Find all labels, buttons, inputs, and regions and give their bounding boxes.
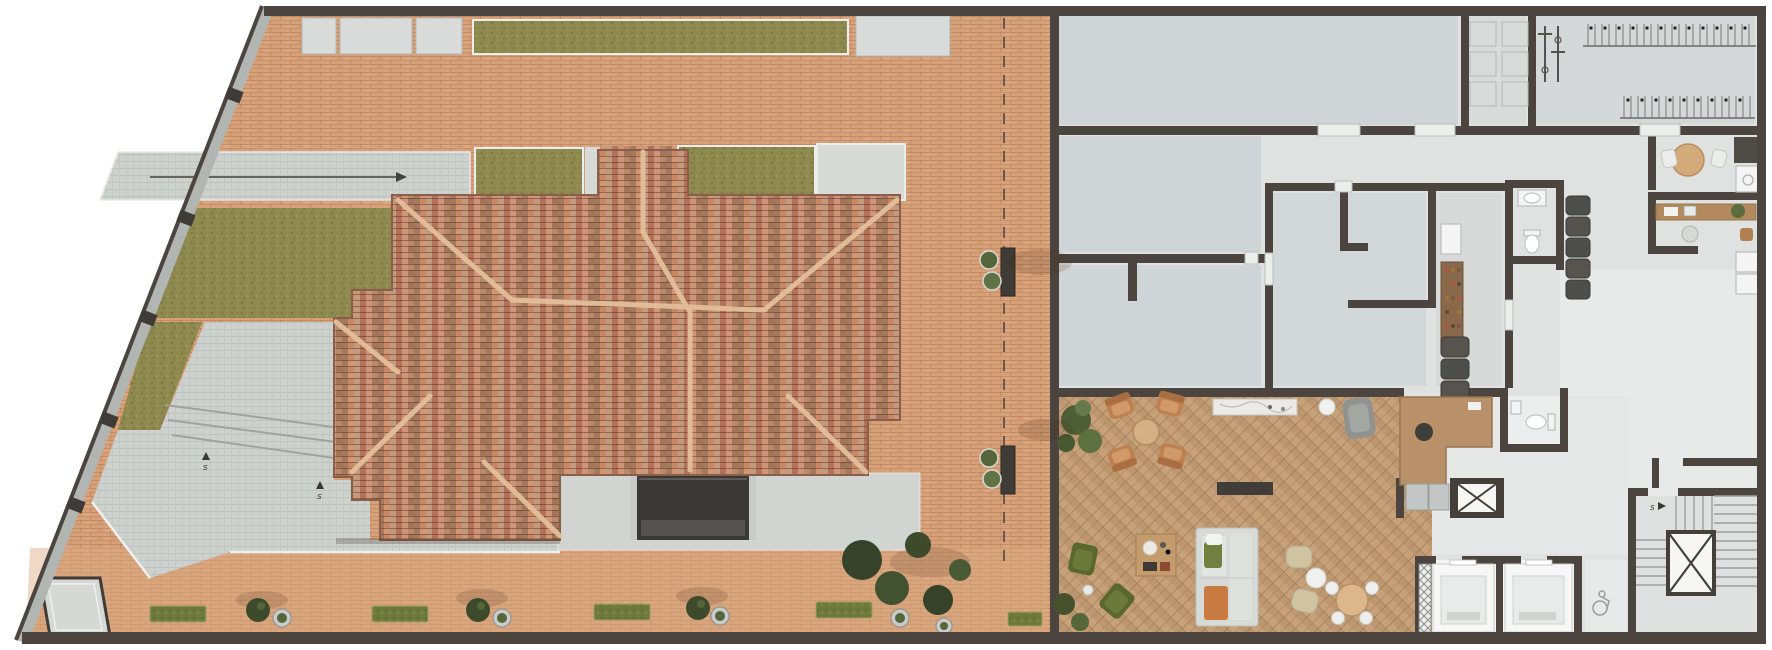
cabinet: [1734, 137, 1760, 163]
water-heaters: [1566, 196, 1590, 299]
rooms-mid: [1273, 193, 1426, 386]
orange-cushion: [1204, 586, 1228, 620]
accessible-wc-niche: [1585, 560, 1627, 632]
elevator: [1433, 560, 1494, 632]
toilet: [1526, 415, 1546, 429]
stair-label: s: [1650, 503, 1655, 513]
wc-room: [1508, 396, 1560, 444]
desk-papers: [1664, 207, 1678, 216]
hedge: [1008, 612, 1042, 626]
desk-monitor: [1684, 206, 1696, 216]
elevator: [1505, 560, 1572, 632]
hedge: [150, 606, 206, 622]
dining-chair: [1366, 582, 1379, 595]
kitchen: [1441, 224, 1463, 350]
roof-shadow: [336, 538, 560, 544]
dining-chair: [1326, 582, 1339, 595]
sink: [1511, 401, 1521, 414]
elevator-shaft-hatch: [1419, 564, 1431, 632]
hedge: [816, 602, 872, 618]
green-blanket: [1204, 542, 1222, 568]
south-wall: [22, 632, 1766, 644]
bar-counter: [1213, 399, 1297, 415]
office-chair: [1682, 226, 1698, 242]
room-mid-left-2: [1059, 265, 1261, 386]
planter-box: [340, 18, 412, 54]
desk-papers: [1468, 402, 1481, 410]
sink: [1524, 193, 1540, 203]
building: s: [1050, 12, 1766, 636]
stool: [1740, 228, 1753, 241]
coffee-table-square: [1136, 534, 1176, 576]
side-table: [1319, 399, 1335, 415]
desk-chair: [1415, 423, 1433, 441]
green-roof-strips: [475, 144, 905, 200]
green-planter-strip: [473, 20, 848, 54]
east-wall: [1757, 6, 1766, 642]
planter-box: [416, 18, 462, 54]
entry-walkway: [100, 152, 470, 200]
courtyard-void: [630, 476, 756, 540]
skylight-box: [40, 578, 110, 636]
lounge-armchair-gray: [1341, 396, 1376, 440]
elevator-door: [1526, 560, 1552, 565]
cabinet: [1406, 484, 1428, 510]
site-plan: s s: [0, 0, 1772, 650]
cabinet: [1429, 484, 1449, 510]
coffee-table: [1133, 419, 1159, 445]
hedge: [594, 604, 650, 620]
plant: [1731, 204, 1745, 218]
dining-chair: [1360, 612, 1373, 625]
step-label: s: [203, 463, 208, 473]
dining-table: [1336, 584, 1368, 616]
side-table: [1306, 568, 1326, 588]
console-bench: [1217, 482, 1273, 495]
hedge: [372, 606, 428, 622]
stair-void: [1668, 532, 1714, 594]
green-roof-strip: [678, 146, 815, 196]
kitchen-counter: [1736, 166, 1760, 192]
appliance: [1441, 224, 1461, 254]
planter-box: [856, 16, 950, 56]
break-room-chair: [1660, 149, 1677, 169]
sofa: [1196, 528, 1258, 626]
green-roof-strip: [475, 148, 583, 196]
step-label: s: [317, 492, 322, 502]
roof-terrace-pad: [817, 144, 905, 200]
toilet-tank: [1548, 414, 1555, 430]
planter-box: [302, 18, 336, 54]
north-wall: [264, 6, 1766, 16]
pouf: [1286, 546, 1312, 568]
room-mid-left-1: [1059, 136, 1261, 252]
toilet: [1525, 235, 1539, 253]
elevator-door: [1450, 560, 1476, 565]
dining-chair: [1332, 612, 1345, 625]
pillow: [1206, 534, 1222, 545]
site-plan-drawing: s s: [0, 0, 1772, 650]
room-large: [1059, 16, 1458, 125]
